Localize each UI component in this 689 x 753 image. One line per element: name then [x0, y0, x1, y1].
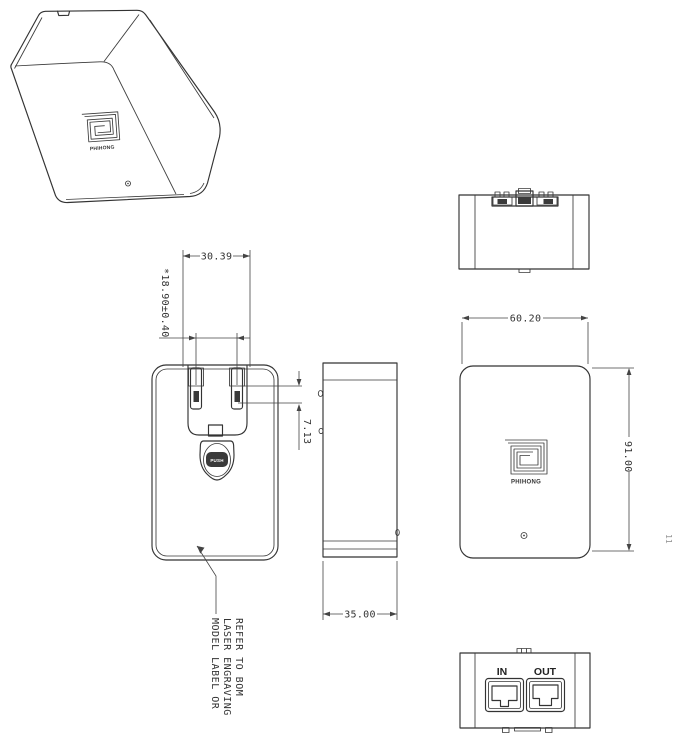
iso-logo-text: PHIHONG — [90, 145, 115, 153]
phihong-logo-icon: PHIHONG — [82, 112, 121, 153]
back-view: PHIHONG 60.20 91.00 11 — [460, 314, 673, 559]
front-view: PUSH 30.39 *18.90±0.40 7.13 — [152, 250, 312, 716]
screw-hole-back — [521, 533, 527, 539]
note-line-1: MODEL LABEL OR — [209, 618, 220, 710]
dim-blade-offset-label: 7.13 — [301, 419, 312, 444]
phihong-logo-back-icon: PHIHONG — [505, 440, 547, 486]
port-out-label: OUT — [534, 666, 557, 678]
rj45-port-in — [486, 679, 524, 712]
dim-blade-span-label: *18.90±0.40 — [159, 268, 170, 338]
port-in-label: IN — [497, 666, 508, 678]
side-view: 35.00 — [318, 363, 399, 621]
note-line-3: REFER TO BOM — [233, 618, 244, 696]
folded-prong-assembly — [492, 189, 558, 207]
dim-prong-width-label: 30.39 — [201, 252, 233, 263]
dim-depth-label: 35.00 — [344, 610, 376, 621]
note-line-2: LASER ENGRAVING — [221, 618, 232, 716]
dim-width-label: 60.20 — [510, 314, 542, 325]
back-logo-text: PHIHONG — [511, 480, 541, 486]
push-button-label: PUSH — [210, 458, 223, 463]
top-view — [459, 189, 589, 273]
push-button: PUSH — [200, 425, 234, 480]
dim-blade-offset-lines — [238, 371, 302, 450]
dim-blade-span-lines — [159, 333, 250, 385]
dim-prong-width-lines — [183, 250, 250, 367]
margin-mark: 11 — [664, 534, 673, 544]
screw-hole-iso — [126, 181, 131, 186]
dim-height-label: 91.00 — [622, 441, 633, 473]
technical-drawing-sheet: PHIHONG PUSH — [0, 0, 689, 753]
drawing-canvas: PHIHONG PUSH — [0, 0, 689, 753]
rj45-port-out — [527, 679, 565, 712]
isometric-view: PHIHONG — [11, 10, 220, 202]
bottom-view: IN OUT — [460, 649, 590, 733]
